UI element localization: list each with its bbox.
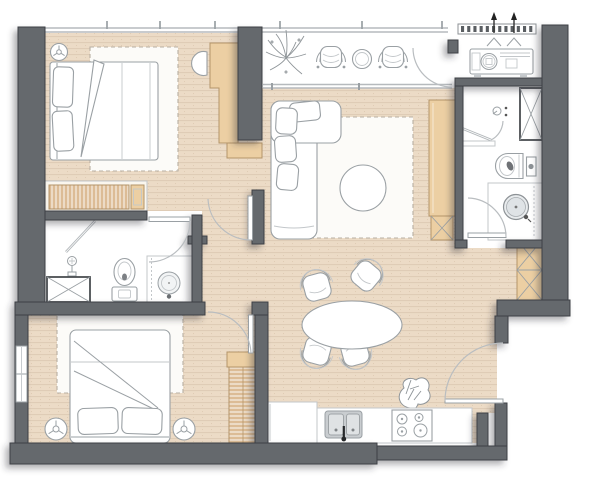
pillow	[78, 407, 119, 434]
wall-bedroom1-living	[238, 27, 262, 140]
wall-bathroom2-bottom-b	[506, 240, 542, 248]
duct-x-icon	[47, 277, 90, 302]
wall-bottom-thin	[377, 446, 507, 460]
ceiling-fan-icon	[45, 418, 67, 440]
duct-x-icon	[431, 216, 453, 240]
wall-bedroom1-door-pillar	[252, 190, 264, 244]
wall-right-step	[497, 300, 570, 316]
pillow	[52, 111, 74, 152]
floor-plan-drawing	[0, 0, 600, 487]
bathroom-1-door	[149, 217, 190, 222]
louver-radiator	[49, 185, 129, 209]
cooktop-icon	[392, 410, 432, 441]
wall-mid-pillar	[252, 302, 268, 315]
entry-door	[445, 399, 503, 403]
sill-mullion	[271, 83, 273, 90]
wardrobe-cap	[227, 352, 259, 367]
room-kitchen	[266, 402, 472, 443]
wall-right-main	[542, 25, 568, 300]
ceiling-fan-icon	[173, 418, 195, 440]
shower-bench	[463, 141, 495, 146]
wall-niche-stub	[477, 413, 488, 446]
oval-dining-table	[302, 301, 402, 349]
wall-bathroom1-top	[45, 211, 147, 220]
wall-bathroom2-left	[455, 78, 463, 248]
sill-mullion	[358, 83, 360, 90]
wall-bedroom2-top	[15, 302, 205, 315]
toilet-icon	[496, 154, 524, 179]
cushion	[275, 107, 297, 134]
wall-right-above-door	[495, 316, 508, 343]
bedroom-1-door	[248, 196, 253, 240]
wall-bathroom2-bottom-a	[455, 240, 467, 248]
floor-entry-hall	[455, 248, 517, 300]
wall-balcony-stub	[448, 40, 458, 53]
ac-unit-icon	[470, 49, 533, 77]
wall-bedroom2-right	[255, 315, 268, 445]
pillow	[122, 407, 163, 434]
toilet-icon	[112, 259, 137, 302]
wall-right-below-door	[495, 403, 507, 446]
nightstand	[227, 143, 262, 158]
cushion	[276, 163, 299, 191]
wall-bathroom2-top	[455, 78, 542, 86]
round-coffee-table	[340, 165, 386, 211]
flush-button	[528, 164, 533, 169]
wall-bottom-thick	[10, 443, 377, 464]
tall-cabinet	[266, 402, 317, 443]
duct-x-icon	[517, 240, 542, 300]
wall-bathroom1-right	[192, 215, 202, 302]
bathroom-2-door	[468, 233, 506, 238]
sink-icon	[325, 411, 362, 441]
ceiling-fan-icon	[51, 44, 68, 61]
wall-left-upper	[18, 27, 45, 310]
floor-plan-canvas	[0, 0, 600, 487]
pillow	[52, 67, 73, 108]
duct-x-icon	[520, 88, 542, 140]
cushion	[274, 135, 297, 162]
